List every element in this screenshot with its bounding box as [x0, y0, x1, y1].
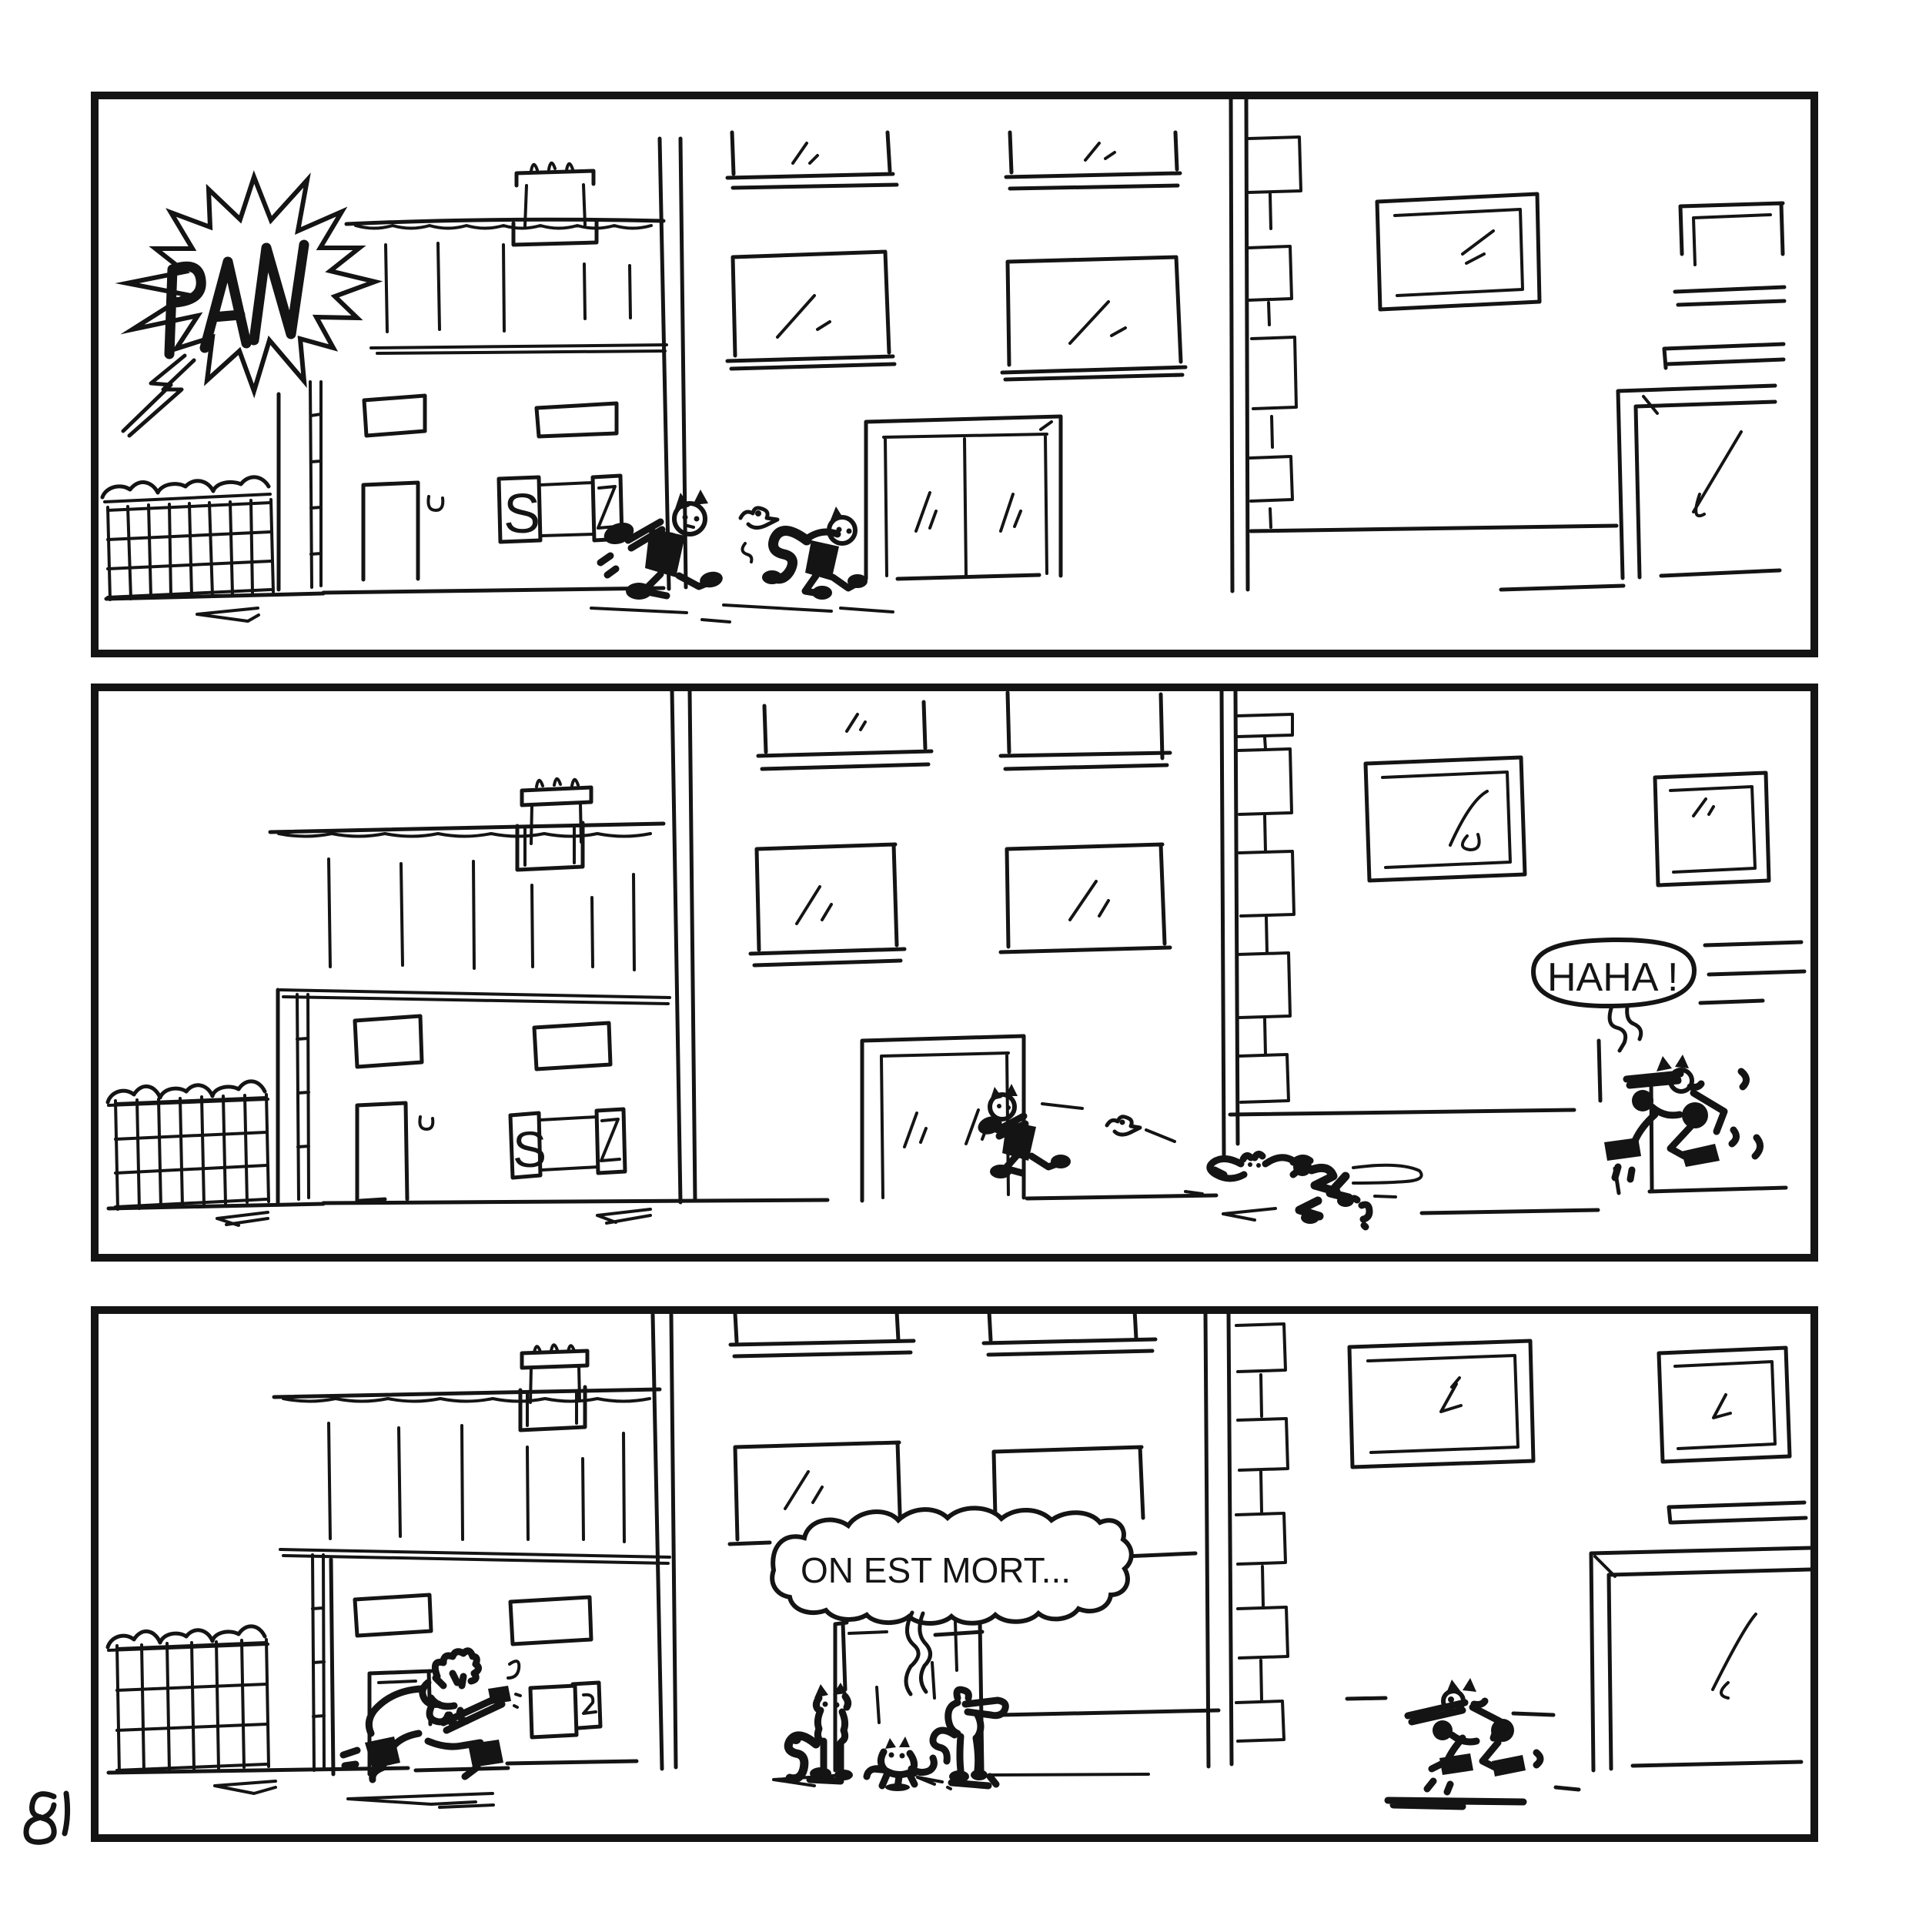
svg-text:S: S	[503, 483, 540, 545]
svg-text:HAHA !: HAHA !	[1547, 955, 1679, 1000]
svg-text:ON EST MORT...: ON EST MORT...	[801, 1550, 1071, 1590]
